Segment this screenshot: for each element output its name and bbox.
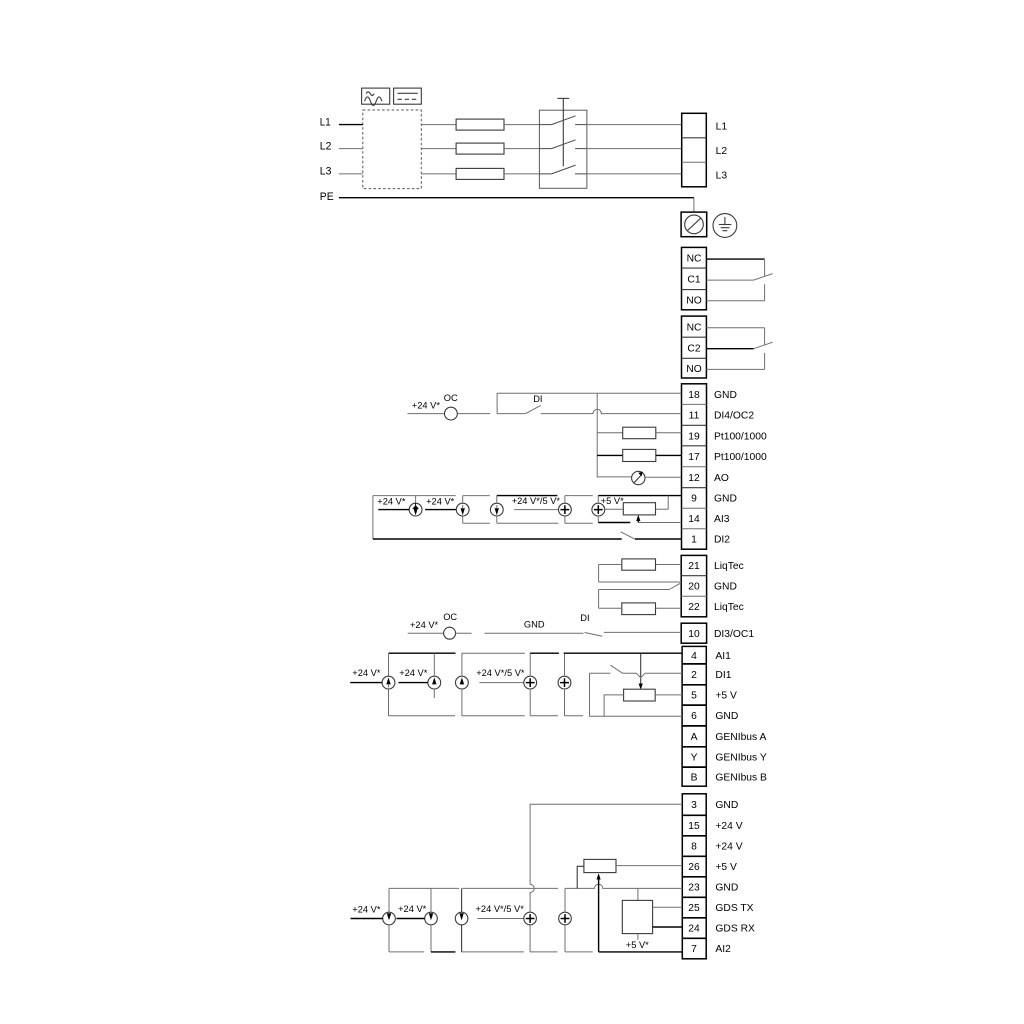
- svg-text:AO: AO: [714, 473, 729, 484]
- svg-text:10: 10: [688, 629, 700, 640]
- svg-text:+24 V*/5 V*: +24 V*/5 V*: [512, 496, 561, 506]
- svg-text:L1: L1: [320, 116, 331, 128]
- svg-text:24: 24: [688, 924, 700, 935]
- svg-text:C2: C2: [687, 344, 700, 355]
- svg-text:NO: NO: [686, 295, 701, 306]
- svg-text:19: 19: [688, 431, 700, 442]
- svg-text:6: 6: [691, 711, 697, 722]
- svg-text:GND: GND: [715, 800, 738, 811]
- svg-text:NO: NO: [686, 364, 701, 375]
- svg-text:+24 V: +24 V: [715, 842, 742, 853]
- svg-text:OC: OC: [443, 612, 457, 622]
- svg-text:Y: Y: [691, 753, 698, 764]
- svg-text:B: B: [691, 772, 698, 783]
- svg-text:LiqTec: LiqTec: [714, 561, 744, 572]
- svg-text:DI2: DI2: [714, 535, 730, 546]
- svg-text:Pt100/1000: Pt100/1000: [714, 431, 767, 442]
- svg-text:+24 V*/5 V*: +24 V*/5 V*: [476, 668, 525, 678]
- svg-text:L2: L2: [320, 140, 332, 152]
- svg-text:+24 V: +24 V: [715, 821, 742, 832]
- svg-text:GND: GND: [524, 619, 545, 629]
- svg-text:+24 V*: +24 V*: [399, 668, 428, 678]
- svg-text:11: 11: [689, 411, 700, 422]
- svg-text:GENIbus Y: GENIbus Y: [715, 753, 766, 764]
- svg-text:GND: GND: [714, 390, 737, 401]
- svg-text:DI: DI: [580, 613, 589, 623]
- svg-text:GDS TX: GDS TX: [715, 903, 753, 914]
- svg-text:GND: GND: [715, 883, 738, 894]
- svg-text:GND: GND: [715, 711, 738, 722]
- svg-text:5: 5: [691, 691, 697, 702]
- svg-text:+24 V*/5 V*: +24 V*/5 V*: [476, 904, 525, 914]
- svg-text:L2: L2: [716, 146, 728, 157]
- svg-text:22: 22: [688, 602, 700, 613]
- svg-text:+24 V*: +24 V*: [426, 496, 455, 506]
- svg-text:DI: DI: [533, 394, 542, 404]
- svg-text:+5 V*: +5 V*: [626, 940, 649, 950]
- svg-text:21: 21: [688, 561, 700, 572]
- svg-text:12: 12: [688, 473, 700, 484]
- svg-text:4: 4: [691, 651, 697, 662]
- svg-text:DI3/OC1: DI3/OC1: [714, 629, 754, 640]
- svg-text:AI1: AI1: [715, 651, 731, 662]
- svg-text:+5 V*: +5 V*: [601, 496, 624, 506]
- svg-text:8: 8: [691, 842, 697, 853]
- svg-text:NC: NC: [687, 254, 702, 265]
- svg-text:+24 V*: +24 V*: [398, 904, 427, 914]
- svg-text:14: 14: [688, 514, 700, 525]
- svg-text:GDS RX: GDS RX: [715, 924, 755, 935]
- svg-text:+24 V*: +24 V*: [377, 496, 406, 506]
- svg-text:DI1: DI1: [715, 670, 731, 681]
- svg-text:LiqTec: LiqTec: [714, 602, 744, 613]
- svg-text:2: 2: [691, 670, 697, 681]
- svg-text:1: 1: [691, 535, 697, 546]
- svg-text:9: 9: [691, 494, 697, 505]
- svg-text:3: 3: [691, 800, 697, 811]
- svg-text:L3: L3: [716, 170, 728, 181]
- svg-text:20: 20: [688, 582, 700, 593]
- svg-text:A: A: [691, 732, 698, 743]
- svg-text:AI3: AI3: [714, 514, 730, 525]
- svg-text:GENIbus A: GENIbus A: [715, 732, 766, 743]
- svg-text:18: 18: [688, 390, 700, 401]
- svg-text:+24 V*: +24 V*: [352, 668, 381, 678]
- svg-text:17: 17: [688, 452, 700, 463]
- svg-text:Pt100/1000: Pt100/1000: [714, 452, 767, 463]
- svg-text:GND: GND: [714, 494, 737, 505]
- svg-text:25: 25: [688, 903, 700, 914]
- svg-text:+24 V*: +24 V*: [410, 620, 439, 630]
- svg-text:+24 V*: +24 V*: [352, 905, 381, 915]
- svg-text:AI2: AI2: [715, 944, 731, 955]
- svg-text:7: 7: [691, 944, 697, 955]
- svg-text:NC: NC: [687, 322, 702, 333]
- svg-text:PE: PE: [320, 191, 334, 203]
- svg-text:+24 V*: +24 V*: [412, 401, 441, 411]
- svg-text:GENIbus B: GENIbus B: [715, 772, 767, 783]
- svg-text:C1: C1: [687, 275, 700, 286]
- svg-text:23: 23: [688, 883, 700, 894]
- svg-text:DI4/OC2: DI4/OC2: [714, 411, 754, 422]
- svg-text:+5 V: +5 V: [715, 862, 737, 873]
- svg-text:GND: GND: [714, 582, 737, 593]
- svg-text:OC: OC: [444, 393, 458, 403]
- svg-text:15: 15: [688, 821, 700, 832]
- svg-text:L3: L3: [320, 166, 332, 178]
- svg-text:L1: L1: [716, 121, 728, 132]
- svg-text:+5 V: +5 V: [715, 691, 737, 702]
- svg-text:26: 26: [688, 862, 700, 873]
